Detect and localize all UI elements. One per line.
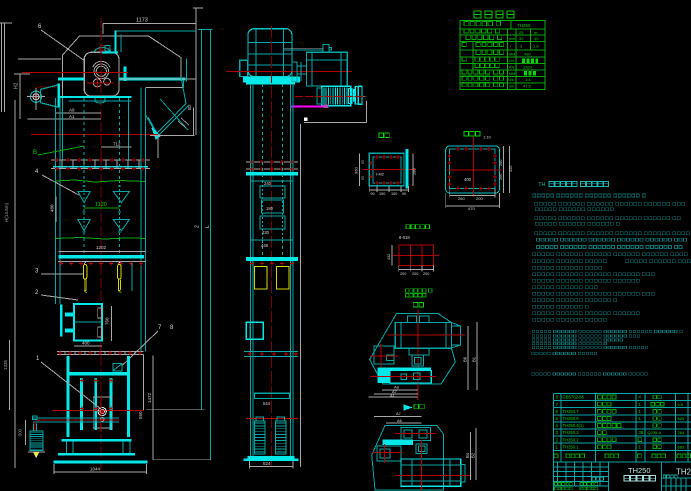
svg-text:r/m: r/m	[509, 85, 514, 89]
svg-text:TH250: TH250	[628, 466, 651, 475]
svg-text:200: 200	[476, 196, 483, 201]
svg-text:1335: 1335	[3, 359, 8, 370]
svg-text:1472: 1472	[147, 392, 152, 403]
svg-text:B2: B2	[187, 104, 192, 110]
svg-text:A9: A9	[69, 107, 75, 112]
svg-text:360: 360	[354, 167, 359, 174]
svg-text:25: 25	[519, 30, 524, 35]
svg-text:150: 150	[379, 192, 385, 196]
svg-text:40: 40	[534, 36, 539, 41]
svg-text:1.8: 1.8	[533, 44, 539, 49]
svg-text:500: 500	[18, 428, 23, 436]
svg-text:38: 38	[639, 430, 644, 435]
svg-text:GB5782-86: GB5782-86	[563, 395, 585, 400]
svg-text:TH250: TH250	[517, 23, 531, 28]
svg-text:LN: LN	[509, 59, 514, 63]
svg-text:200: 200	[499, 174, 503, 180]
svg-text:65: 65	[361, 176, 365, 180]
svg-text:685: 685	[678, 444, 685, 449]
svg-text:TH: TH	[538, 182, 545, 188]
svg-text:B2: B2	[471, 452, 476, 458]
svg-text:30: 30	[519, 36, 524, 41]
svg-text:A6: A6	[397, 418, 403, 423]
svg-text:280: 280	[412, 168, 417, 175]
svg-text:90: 90	[371, 192, 375, 196]
svg-text:H2: H2	[14, 82, 20, 89]
svg-text:180: 180	[266, 206, 274, 211]
svg-text:TH250.7: TH250.7	[563, 409, 580, 414]
svg-text:200: 200	[423, 272, 429, 276]
svg-text:400: 400	[82, 340, 90, 345]
svg-text:TH2: TH2	[676, 468, 691, 477]
svg-text:L: L	[205, 225, 211, 228]
svg-text:448: 448	[261, 243, 269, 248]
svg-text:2: 2	[195, 225, 201, 228]
svg-text:Q235-A: Q235-A	[648, 430, 662, 435]
svg-text:47.5: 47.5	[523, 84, 532, 89]
svg-text:B4: B4	[465, 452, 470, 458]
svg-text:B1: B1	[472, 356, 477, 362]
svg-text:200: 200	[400, 272, 406, 276]
svg-text:200: 200	[412, 272, 418, 276]
svg-text:TH250.4(1): TH250.4(1)	[563, 423, 585, 428]
svg-text:H(14.6m): H(14.6m)	[4, 202, 9, 222]
svg-text:1.4: 1.4	[525, 77, 531, 82]
svg-text:544: 544	[263, 401, 271, 406]
svg-text:480: 480	[524, 51, 531, 56]
svg-text:TH250.1: TH250.1	[563, 444, 580, 449]
svg-text:760: 760	[105, 317, 110, 325]
svg-text:A1: A1	[390, 393, 396, 398]
svg-text:TH250.6: TH250.6	[563, 416, 580, 421]
svg-text:1044: 1044	[90, 466, 101, 471]
svg-text:TH250.3: TH250.3	[563, 430, 580, 435]
svg-text:150: 150	[391, 192, 397, 196]
svg-text:MM: MM	[509, 72, 515, 76]
svg-text:KN: KN	[509, 66, 515, 70]
svg-text:≥320: ≥320	[523, 65, 533, 70]
svg-text:B: B	[33, 150, 37, 156]
svg-text:430: 430	[262, 230, 270, 235]
svg-text:625: 625	[678, 416, 685, 421]
svg-text:1173: 1173	[136, 18, 148, 24]
svg-text:9.0: 9.0	[678, 402, 684, 407]
svg-text:8-018: 8-018	[399, 235, 410, 240]
svg-text:200: 200	[499, 160, 503, 166]
svg-text:264: 264	[678, 430, 685, 435]
svg-text:400: 400	[464, 177, 472, 182]
svg-text:A1: A1	[69, 114, 75, 119]
svg-text:420: 420	[509, 166, 513, 172]
svg-text:65: 65	[361, 160, 365, 164]
svg-text:1202: 1202	[96, 245, 107, 250]
svg-text:550: 550	[138, 411, 143, 419]
svg-text:l: l	[510, 44, 511, 49]
svg-text:524: 524	[263, 461, 271, 466]
svg-text:N/s: N/s	[508, 78, 514, 82]
svg-text:260: 260	[458, 196, 465, 201]
svg-text:1:10: 1:10	[483, 135, 492, 140]
svg-text:mm: mm	[509, 37, 515, 41]
svg-text:432: 432	[387, 254, 391, 260]
svg-text:B6: B6	[463, 356, 468, 362]
svg-text:TH250.2: TH250.2	[563, 437, 580, 442]
svg-text:MM: MM	[509, 52, 515, 56]
svg-text:470: 470	[468, 206, 475, 211]
svg-text:1120: 1120	[95, 202, 107, 208]
svg-text:240: 240	[264, 181, 272, 186]
svg-text:90: 90	[402, 192, 406, 196]
svg-text:A7: A7	[396, 411, 402, 416]
svg-text:480: 480	[50, 204, 55, 212]
svg-text:I-M2: I-M2	[376, 172, 385, 177]
